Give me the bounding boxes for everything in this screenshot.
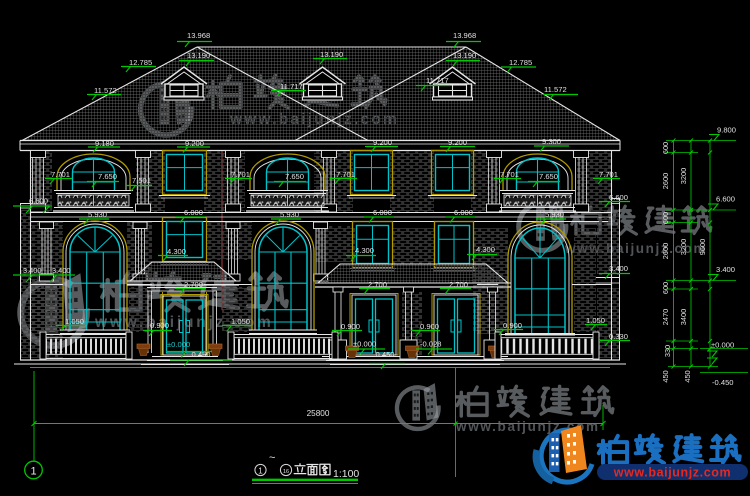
svg-text:±0.000: ±0.000 <box>711 341 734 350</box>
svg-text:5.930: 5.930 <box>280 210 299 219</box>
svg-text:6.600: 6.600 <box>29 197 48 206</box>
svg-text:13.968: 13.968 <box>453 31 476 40</box>
svg-text:450: 450 <box>661 370 670 382</box>
svg-text:7.701: 7.701 <box>500 170 519 179</box>
svg-text:7.701: 7.701 <box>51 170 70 179</box>
svg-text:7.701: 7.701 <box>599 170 618 179</box>
svg-text:450: 450 <box>683 370 692 382</box>
svg-text:600: 600 <box>661 142 670 154</box>
svg-text:3200: 3200 <box>679 239 688 255</box>
svg-text:13.968: 13.968 <box>187 31 210 40</box>
svg-text:13.190: 13.190 <box>453 51 476 60</box>
svg-text:1:100: 1:100 <box>333 468 359 480</box>
svg-text:4.300: 4.300 <box>476 245 495 254</box>
svg-text:3.400: 3.400 <box>23 266 42 275</box>
svg-text:2600: 2600 <box>661 243 670 259</box>
svg-text:www.baijunjz.com: www.baijunjz.com <box>613 466 731 480</box>
svg-text:±0.000: ±0.000 <box>353 340 376 349</box>
svg-text:6.000: 6.000 <box>184 208 203 217</box>
svg-text:7.701: 7.701 <box>336 170 355 179</box>
svg-text:2600: 2600 <box>661 173 670 189</box>
svg-text:7.650: 7.650 <box>539 172 558 181</box>
svg-text:1.050: 1.050 <box>231 317 250 326</box>
svg-text:12.785: 12.785 <box>129 58 152 67</box>
svg-text:3.400: 3.400 <box>716 265 735 274</box>
svg-text:3.400: 3.400 <box>52 266 71 275</box>
svg-text:330: 330 <box>663 345 672 357</box>
svg-text:4.300: 4.300 <box>355 246 374 255</box>
svg-text:25800: 25800 <box>307 409 330 418</box>
svg-text:9.200: 9.200 <box>373 138 392 147</box>
svg-text:3400: 3400 <box>679 309 688 325</box>
svg-text:9.800: 9.800 <box>717 126 736 135</box>
svg-text:±0.000: ±0.000 <box>167 340 190 349</box>
svg-text:-0.028: -0.028 <box>420 340 442 349</box>
svg-text:11.717: 11.717 <box>426 76 449 85</box>
svg-text:0.900: 0.900 <box>420 322 439 331</box>
svg-text:2.700: 2.700 <box>368 280 387 289</box>
svg-text:16: 16 <box>283 469 289 475</box>
svg-text:1: 1 <box>258 467 263 476</box>
svg-text:9.180: 9.180 <box>95 139 114 148</box>
svg-text:4.300: 4.300 <box>167 247 186 256</box>
svg-text:0.900: 0.900 <box>150 321 169 330</box>
svg-text:6.600: 6.600 <box>609 193 628 202</box>
svg-text:600: 600 <box>661 282 670 294</box>
svg-text:11.717: 11.717 <box>280 82 303 91</box>
svg-text:0.900: 0.900 <box>341 322 360 331</box>
svg-text:2470: 2470 <box>661 309 670 325</box>
svg-text:-0.450: -0.450 <box>373 350 395 359</box>
svg-text:11.572: 11.572 <box>94 86 117 95</box>
svg-text:13.190: 13.190 <box>187 51 210 60</box>
svg-text:9.200: 9.200 <box>185 139 204 148</box>
svg-text:12.785: 12.785 <box>509 58 532 67</box>
svg-text:1.050: 1.050 <box>586 316 605 325</box>
svg-text:~: ~ <box>269 452 275 464</box>
svg-text:2.700: 2.700 <box>449 280 468 289</box>
svg-text:9.300: 9.300 <box>542 137 561 146</box>
svg-text:1.050: 1.050 <box>65 317 84 326</box>
svg-text:-0.450: -0.450 <box>712 378 734 387</box>
svg-text:13.190: 13.190 <box>320 50 343 59</box>
svg-text:6.600: 6.600 <box>716 195 735 204</box>
svg-text:3.400: 3.400 <box>609 264 628 273</box>
svg-text:5.930: 5.930 <box>88 210 107 219</box>
svg-text:0.900: 0.900 <box>503 321 522 330</box>
svg-text:600: 600 <box>661 212 670 224</box>
svg-text:9600: 9600 <box>698 239 707 255</box>
svg-text:7.501: 7.501 <box>132 176 151 185</box>
svg-text:6.000: 6.000 <box>454 208 473 217</box>
svg-text:2.700: 2.700 <box>184 280 203 289</box>
svg-text:3200: 3200 <box>679 168 688 184</box>
svg-text:6.000: 6.000 <box>373 208 392 217</box>
svg-text:7.650: 7.650 <box>285 172 304 181</box>
svg-text:11.572: 11.572 <box>544 85 567 94</box>
svg-text:1: 1 <box>30 466 36 478</box>
svg-text:-0.450: -0.450 <box>189 350 211 359</box>
svg-text:5.930: 5.930 <box>545 210 564 219</box>
svg-text:7.650: 7.650 <box>98 172 117 181</box>
svg-text:7.701: 7.701 <box>231 170 250 179</box>
svg-text:9.200: 9.200 <box>448 138 467 147</box>
svg-text:0.330: 0.330 <box>609 332 628 341</box>
